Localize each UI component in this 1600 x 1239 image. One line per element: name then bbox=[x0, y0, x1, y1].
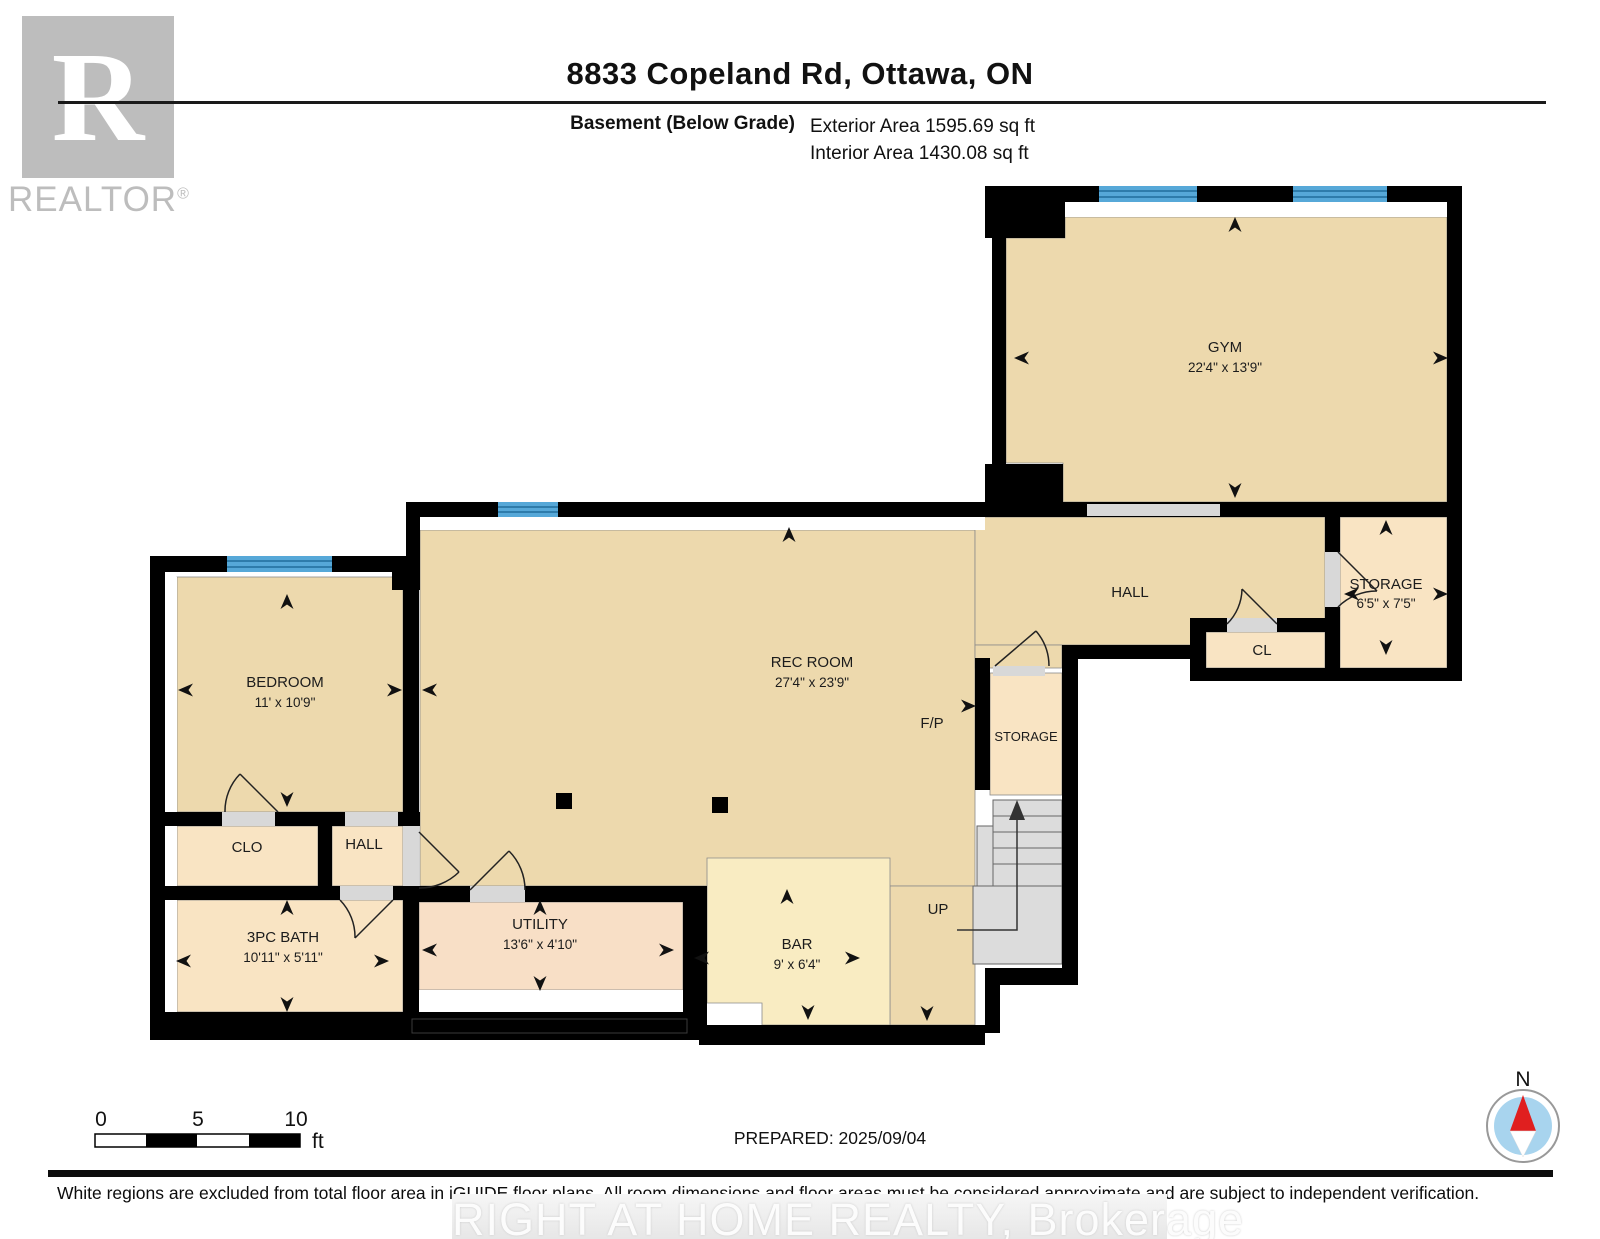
room-dims-utility: 13'6" x 4'10" bbox=[503, 937, 577, 952]
scale-tick-5: 5 bbox=[192, 1108, 204, 1131]
room-label-storage2: STORAGE bbox=[994, 729, 1058, 744]
prepared-date: PREPARED: 2025/09/04 bbox=[690, 1128, 970, 1149]
room-label-rec: REC ROOM bbox=[771, 654, 854, 671]
floor-plan: GYM 22'4" x 13'9" HALL STORAGE 6'5" x 7'… bbox=[0, 0, 1600, 1239]
room-label-hall: HALL bbox=[1111, 584, 1149, 601]
room-label-cl: CL bbox=[1252, 642, 1271, 659]
window bbox=[1293, 186, 1387, 202]
compass-north-label: N bbox=[1515, 1068, 1530, 1091]
window bbox=[1099, 186, 1197, 202]
brokerage-watermark: RIGHT AT HOME REALTY, Brokerage bbox=[452, 1194, 1167, 1239]
room-label-bath: 3PC BATH bbox=[247, 929, 319, 946]
room-label-utility: UTILITY bbox=[512, 916, 568, 933]
room-label-storage: STORAGE bbox=[1349, 576, 1422, 593]
scale-bar: 0 5 10 ft bbox=[95, 1108, 324, 1153]
room-dims-storage: 6'5" x 7'5" bbox=[1356, 596, 1415, 611]
fireplace-label: F/P bbox=[920, 715, 943, 732]
room-dims-bedroom: 11' x 10'9" bbox=[255, 695, 316, 710]
room-dims-rec: 27'4" x 23'9" bbox=[775, 675, 849, 690]
room-label-gym: GYM bbox=[1208, 339, 1242, 356]
scale-tick-0: 0 bbox=[95, 1108, 107, 1131]
room-label-bedroom: BEDROOM bbox=[246, 674, 324, 691]
room-label-hall2: HALL bbox=[345, 836, 383, 853]
footer-divider bbox=[48, 1170, 1553, 1177]
room-label-clo: CLO bbox=[232, 839, 263, 856]
compass-icon: N bbox=[1487, 1068, 1559, 1162]
scale-unit: ft bbox=[312, 1130, 324, 1153]
room-dims-bath: 10'11" x 5'11" bbox=[243, 950, 323, 965]
column bbox=[712, 797, 728, 813]
column bbox=[556, 793, 572, 809]
clo-floor bbox=[177, 826, 318, 886]
stairs-up-label: UP bbox=[928, 901, 949, 918]
scale-tick-10: 10 bbox=[284, 1108, 307, 1131]
room-dims-gym: 22'4" x 13'9" bbox=[1188, 360, 1262, 375]
rec-room-floor bbox=[420, 530, 975, 886]
window bbox=[498, 502, 558, 517]
hall2-floor bbox=[332, 826, 403, 886]
room-label-bar: BAR bbox=[782, 936, 813, 953]
window bbox=[227, 556, 332, 572]
room-dims-bar: 9' x 6'4" bbox=[774, 957, 821, 972]
floor-plan-page: R REALTOR® 8833 Copeland Rd, Ottawa, ON … bbox=[0, 0, 1600, 1239]
